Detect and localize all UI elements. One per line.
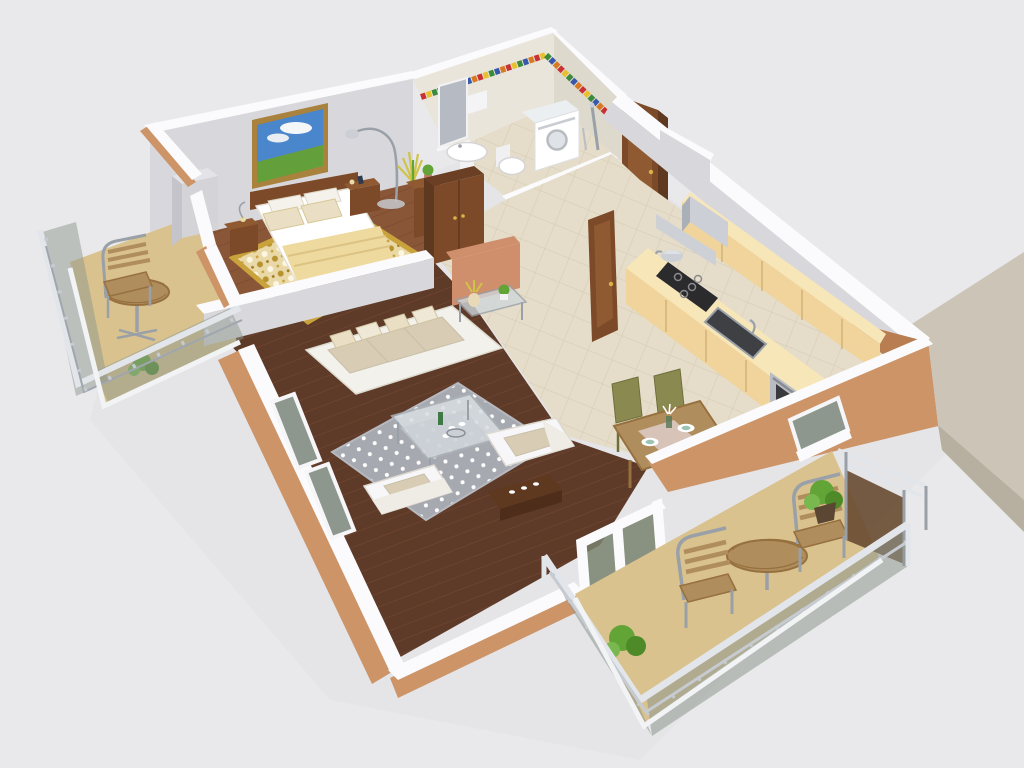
- painting-cloud: [267, 134, 289, 143]
- door-handle: [609, 282, 613, 286]
- vase: [666, 416, 672, 428]
- entry-door-handle: [649, 170, 653, 174]
- plant-pot: [500, 294, 508, 300]
- cabinet-plant: [423, 165, 434, 176]
- lamp-head: [345, 129, 359, 139]
- wardrobe-handle: [461, 214, 465, 218]
- washer-door: [548, 131, 567, 150]
- open-interior-door: [588, 210, 618, 342]
- wardrobe-handle: [453, 216, 457, 220]
- floorplan-render: [0, 0, 1024, 768]
- painting-cloud: [280, 122, 312, 134]
- espresso-cup: [533, 482, 539, 486]
- espresso-cup: [521, 486, 527, 490]
- cup: [459, 422, 466, 426]
- side-table-plant: [499, 285, 510, 296]
- bottle: [438, 412, 443, 425]
- table-lamp: [350, 180, 355, 185]
- espresso-cup: [509, 490, 515, 494]
- flower-vase: [468, 293, 480, 307]
- lamp-base: [377, 199, 405, 209]
